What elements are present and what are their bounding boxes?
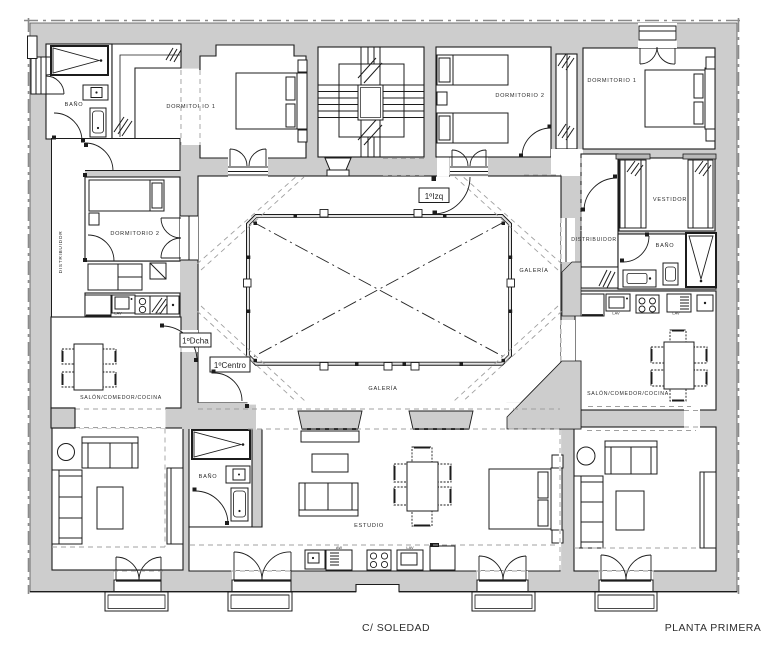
- svg-text:AW: AW: [336, 545, 343, 550]
- svg-text:1ºIzq: 1ºIzq: [425, 192, 444, 201]
- svg-text:DORMITORIO 2: DORMITORIO 2: [495, 93, 544, 99]
- svg-text:DORMITORIO 1: DORMITORIO 1: [587, 78, 636, 84]
- svg-text:LAV: LAV: [672, 311, 680, 316]
- svg-text:BAÑO: BAÑO: [656, 242, 675, 249]
- svg-text:LAV: LAV: [612, 311, 620, 316]
- svg-text:BAÑO: BAÑO: [65, 101, 84, 108]
- svg-text:VESTIDOR: VESTIDOR: [653, 197, 687, 203]
- svg-text:PLANTA PRIMERA: PLANTA PRIMERA: [665, 622, 762, 634]
- svg-text:LAV: LAV: [406, 545, 414, 550]
- svg-text:GALERÍA: GALERÍA: [368, 385, 397, 392]
- svg-text:1ºCentro: 1ºCentro: [214, 361, 247, 370]
- svg-text:ESTUDIO: ESTUDIO: [354, 523, 384, 529]
- svg-text:BAÑO: BAÑO: [199, 473, 218, 480]
- svg-text:SALÓN/COMEDOR/COCINA: SALÓN/COMEDOR/COCINA: [587, 390, 669, 397]
- svg-text:DORMITORIO 2: DORMITORIO 2: [110, 231, 159, 237]
- svg-text:C/ SOLEDAD: C/ SOLEDAD: [362, 622, 430, 634]
- svg-text:GALERÍA: GALERÍA: [519, 267, 548, 274]
- svg-text:SALÓN/COMEDOR/COCINA: SALÓN/COMEDOR/COCINA: [80, 394, 162, 401]
- svg-text:DISTRIBUIDOR: DISTRIBUIDOR: [571, 237, 617, 243]
- svg-text:DISTRIBUIDOR: DISTRIBUIDOR: [58, 231, 64, 274]
- svg-text:DORMITORIO 1: DORMITORIO 1: [166, 104, 215, 110]
- svg-text:LAV: LAV: [114, 311, 122, 316]
- svg-text:AW: AW: [155, 311, 162, 316]
- svg-text:1ºDcha: 1ºDcha: [182, 337, 209, 346]
